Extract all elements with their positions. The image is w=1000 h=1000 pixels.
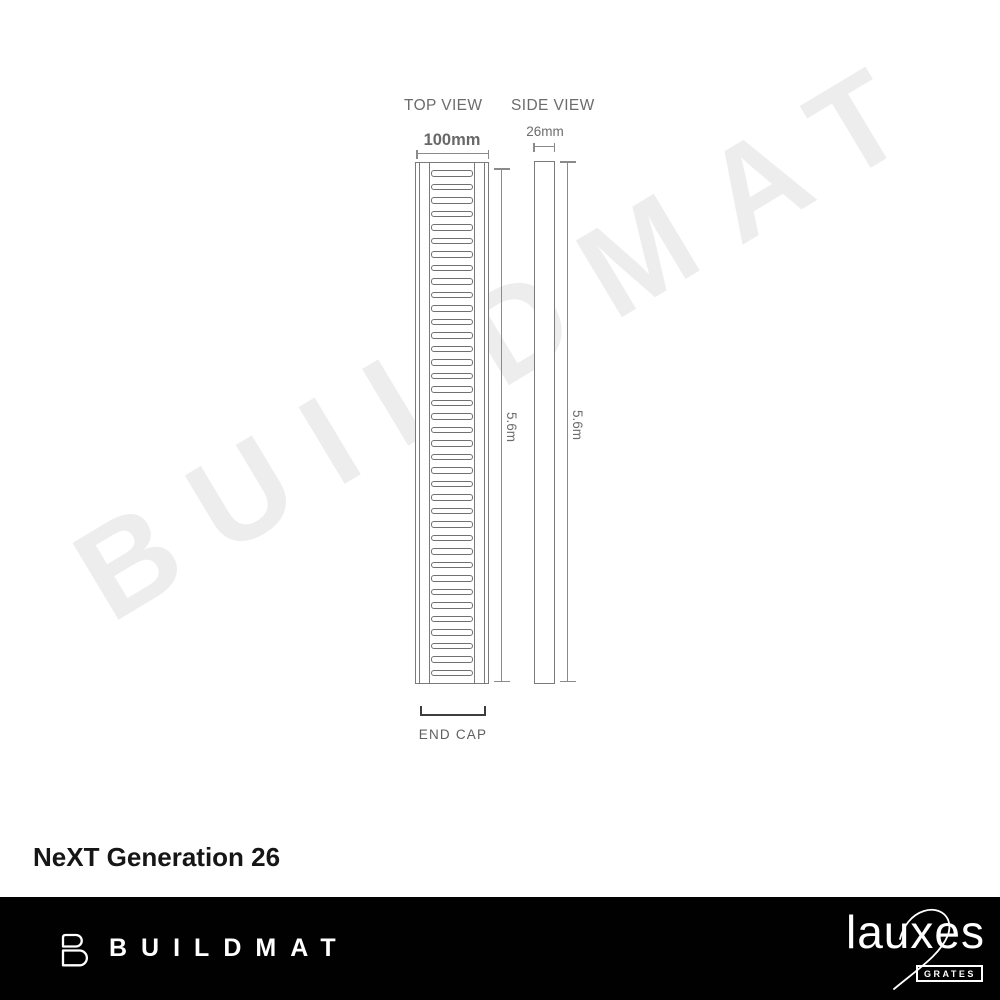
side-view-title: SIDE VIEW [511,97,595,115]
watermark-text: BUILDMAT [49,20,960,650]
lauxes-logo-text: lauxes [846,905,985,959]
grate-slot [431,629,473,636]
grate-slot [431,359,473,366]
lauxes-grates-badge: GRATES [916,965,983,982]
grate-slot [431,346,473,353]
grate-slot [431,440,473,447]
grate-slot [431,548,473,555]
grate-slot [431,413,473,420]
grate-top-view-drawing [415,162,489,684]
grate-slot [431,292,473,299]
grate-slot [431,184,473,191]
buildmat-logo-text: BUILDMAT [109,934,350,963]
buildmat-logo-icon [56,930,92,968]
grate-slot [431,508,473,515]
grate-slot [431,562,473,569]
grate-slot [431,656,473,663]
grate-slots [431,170,473,676]
grate-slot [431,211,473,218]
grate-slot [431,305,473,312]
grate-slot [431,265,473,272]
footer-bar: BUILDMAT lauxes GRATES [0,897,1000,1000]
grate-slot [431,616,473,623]
top-view-width-dim-line [416,153,489,154]
grate-slot [431,224,473,231]
grate-slot [431,427,473,434]
top-view-title: TOP VIEW [404,97,482,115]
lauxes-logo: lauxes GRATES [840,901,995,996]
grate-rail-line [429,163,430,683]
grate-slot [431,535,473,542]
side-view-length-dimension: 5.6m [570,410,585,440]
grate-slot [431,251,473,258]
grate-side-view-drawing [534,161,555,684]
top-view-width-dimension: 100mm [412,131,492,150]
top-view-length-dimension: 5.6m [504,412,519,442]
grate-slot [431,197,473,204]
grate-slot [431,589,473,596]
grate-slot [431,373,473,380]
side-view-width-dimension: 26mm [522,124,568,139]
grate-slot [431,467,473,474]
grate-slot [431,278,473,285]
page: BUILDMAT TOP VIEW SIDE VIEW 100mm 26mm 5… [0,0,1000,1000]
end-cap-label: END CAP [413,727,493,742]
grate-slot [431,386,473,393]
grate-slot [431,521,473,528]
grate-rail-line [419,163,420,683]
grate-slot [431,602,473,609]
grate-slot [431,319,473,326]
grate-rail-line [474,163,475,683]
side-view-width-dim-line [533,146,555,147]
grate-slot [431,332,473,339]
product-title: NeXT Generation 26 [33,842,280,873]
end-cap-bracket [420,706,486,716]
top-view-length-dim-line [501,168,502,682]
grate-slot [431,400,473,407]
side-view-length-dim-line [567,161,568,682]
grate-slot [431,643,473,650]
grate-slot [431,670,473,677]
grate-slot [431,170,473,177]
grate-slot [431,238,473,245]
grate-slot [431,481,473,488]
grate-slot [431,454,473,461]
buildmat-logo: BUILDMAT [56,930,350,968]
grate-slot [431,575,473,582]
grate-slot [431,494,473,501]
grate-rail-line [484,163,485,683]
